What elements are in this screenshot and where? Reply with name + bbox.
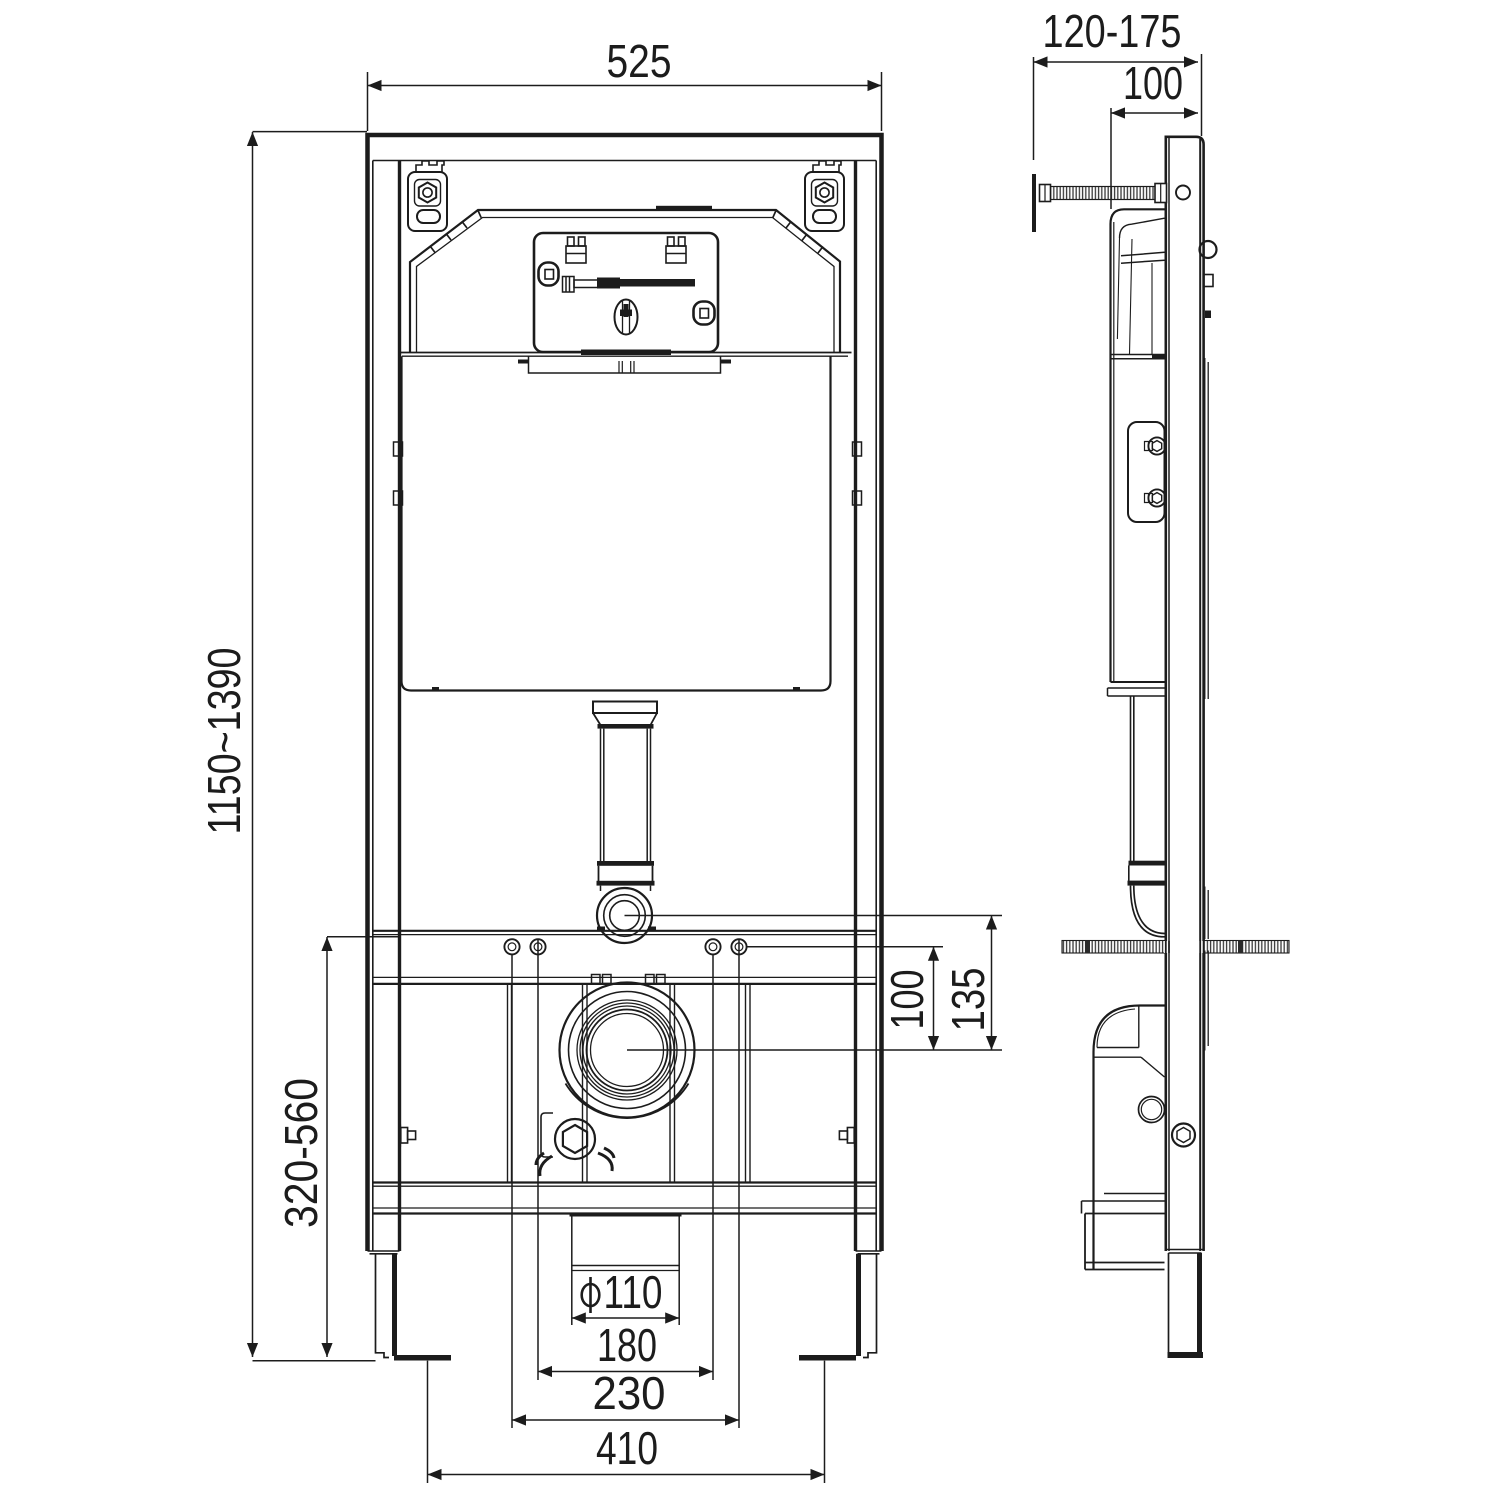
svg-text:100: 100 bbox=[1123, 57, 1183, 109]
svg-text:410: 410 bbox=[596, 1422, 658, 1474]
svg-text:135: 135 bbox=[942, 968, 994, 1032]
svg-text:230: 230 bbox=[593, 1367, 666, 1419]
svg-text:120-175: 120-175 bbox=[1043, 5, 1182, 57]
svg-text:100: 100 bbox=[881, 970, 933, 1030]
svg-text:1150~1390: 1150~1390 bbox=[198, 648, 250, 835]
svg-text:525: 525 bbox=[607, 35, 672, 87]
svg-text:110: 110 bbox=[604, 1266, 663, 1318]
svg-text:320-560: 320-560 bbox=[275, 1078, 327, 1228]
svg-text:180: 180 bbox=[597, 1319, 657, 1371]
